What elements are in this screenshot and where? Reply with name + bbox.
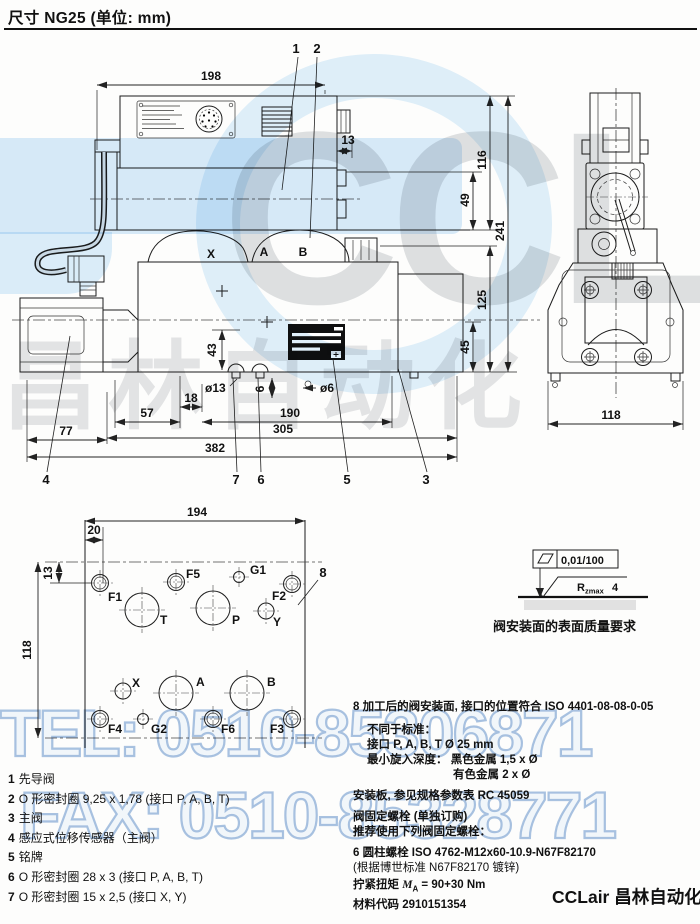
svg-text:F2: F2 (272, 589, 286, 603)
svg-text:P: P (232, 613, 240, 627)
dim-116: 116 (475, 150, 489, 170)
callout-8: 8 (319, 565, 326, 580)
port-label-x: X (207, 247, 215, 261)
note-bolt1: 阀固定螺栓 (单独订购) (353, 810, 699, 825)
solenoid-icon (262, 107, 292, 136)
list-item: 4感应式位移传感器（主阀） (8, 829, 350, 849)
svg-text:G1: G1 (250, 563, 266, 577)
port-label-a: A (260, 245, 269, 259)
dim-118-endview: 118 (601, 408, 621, 422)
svg-text:X: X (132, 676, 140, 690)
dim-6: 6 (253, 385, 267, 392)
port-b: B (224, 670, 276, 716)
dim-198: 198 (201, 69, 221, 83)
port-x: X (110, 676, 140, 704)
port-f5: F5 (163, 567, 200, 595)
list-item: 2O 形密封圈 9,25 x 1,78 (接口 P, A, B, T) (8, 790, 350, 810)
roughness-sub: zmax (585, 587, 605, 596)
port-a: A (153, 670, 205, 716)
callout-6: 6 (257, 472, 264, 487)
dim-382: 382 (205, 441, 225, 455)
dim-13-top: 13 (341, 133, 355, 147)
callouts: 1 2 4 7 6 5 3 (42, 41, 429, 487)
notes-block: 8 加工后的阀安装面, 接口的位置符合 ISO 4401-08-08-0-05 … (353, 700, 699, 913)
flatness-value: 0,01/100 (561, 555, 604, 567)
sensor-cable (37, 152, 104, 296)
plate-ports: F1 F5 G1 F2 T P Y X A B F4 G2 F6 F3 (87, 563, 305, 736)
mounting-bolts (559, 282, 674, 366)
callout-4: 4 (42, 472, 50, 487)
callout-2: 2 (313, 41, 320, 56)
dim-77: 77 (59, 424, 73, 438)
list-item: 1先导阀 (8, 770, 350, 790)
note-item8: 8 加工后的阀安装面, 接口的位置符合 ISO 4401-08-08-0-05 (353, 700, 699, 715)
port-t: T (119, 587, 168, 633)
title-rule (4, 28, 697, 30)
roughness-r: R (577, 582, 585, 594)
port-f1: F1 (87, 570, 122, 604)
surface-caption: 阀安装面的表面质量要求 (493, 619, 637, 634)
connector-icon (196, 106, 222, 132)
svg-text:F6: F6 (221, 722, 235, 736)
svg-text:B: B (267, 675, 276, 689)
parts-list: 1先导阀 2O 形密封圈 9,25 x 1,78 (接口 P, A, B, T)… (8, 770, 350, 907)
note-ports: 接口 P, A, B, T Ø 25 mm (353, 738, 699, 753)
pilot-label-plate (137, 101, 235, 138)
svg-text:T: T (160, 613, 168, 627)
dim-125: 125 (475, 290, 489, 310)
mounting-face-drawing: 194 20 13 118 F1 F5 G1 F2 T P Y X A B F4… (20, 505, 327, 748)
note-bolt3: 6 圆柱螺栓 ISO 4762-M12x60-10.9-N67F82170 (353, 846, 699, 861)
note-depth: 最小旋入深度： 黑色金属 1,5 x Ø (353, 753, 699, 768)
dim-dia6: ø6 (320, 381, 334, 395)
note-standard: 不同于标准： (353, 723, 699, 738)
footer-brand: CCLair 昌林自动化 (552, 884, 700, 909)
port-f6: F6 (200, 706, 235, 736)
note-plate: 安装板, 参见规格参数表 RC 45059 (353, 789, 699, 804)
port-g2: G2 (133, 709, 167, 736)
list-item: 6O 形密封圈 28 x 3 (接口 P, A, B, T) (8, 868, 350, 888)
svg-text:F1: F1 (108, 590, 122, 604)
callout-1: 1 (292, 41, 299, 56)
svg-text:F3: F3 (270, 722, 284, 736)
callout-3: 3 (422, 472, 429, 487)
svg-text:A: A (196, 675, 205, 689)
svg-text:F4: F4 (108, 722, 122, 736)
dim-49: 49 (458, 193, 472, 207)
page-title: 尺寸 NG25 (单位: mm) (8, 6, 171, 28)
list-item: 3主阀 (8, 809, 350, 829)
side-view-dimensions: 198 13 116 49 241 125 45 43 ø13 (27, 69, 517, 462)
name-plate (288, 324, 345, 360)
note-depth2: 有色金属 2 x Ø (353, 768, 699, 783)
svg-text:F5: F5 (186, 567, 200, 581)
port-f2: F2 (272, 571, 305, 603)
dim-305: 305 (273, 422, 293, 436)
port-f4: F4 (87, 706, 122, 736)
dim-45: 45 (458, 340, 472, 354)
dim-18: 18 (184, 391, 198, 405)
svg-text:G2: G2 (151, 722, 167, 736)
note-bolt4: (根据博世标准 N67F82170 镀锌) (353, 861, 699, 876)
svg-text:Y: Y (273, 615, 281, 629)
position-sensor (20, 298, 138, 372)
dim-118-plate: 118 (20, 640, 34, 660)
dim-194: 194 (187, 505, 207, 519)
dim-57: 57 (140, 406, 154, 420)
port-f3: F3 (270, 706, 305, 736)
list-item: 5铭牌 (8, 848, 350, 868)
dim-20: 20 (87, 523, 101, 537)
pilot-valve (90, 96, 470, 230)
dim-190: 190 (280, 406, 300, 420)
port-p: P (190, 585, 240, 631)
flatness-icon (538, 554, 553, 563)
main-valve (12, 230, 540, 387)
dim-241: 241 (493, 221, 507, 241)
dim-43: 43 (205, 343, 219, 357)
dim-13-plate: 13 (41, 566, 55, 580)
list-item: 7O 形密封圈 15 x 2,5 (接口 X, Y) (8, 888, 350, 908)
port-label-b: B (299, 245, 308, 259)
tank-fitting (345, 238, 377, 262)
surface-quality-symbol: 0,01/100 R zmax 4 阀安装面的表面质量要求 (493, 550, 648, 634)
callout-5: 5 (343, 472, 350, 487)
dim-dia13: ø13 (205, 381, 226, 395)
end-view: 118 (548, 88, 683, 430)
port-g1: G1 (229, 563, 266, 587)
callout-7: 7 (232, 472, 239, 487)
roughness-value: 4 (612, 582, 619, 594)
note-bolt2: 推荐使用下列阀固定螺栓： (353, 825, 699, 840)
